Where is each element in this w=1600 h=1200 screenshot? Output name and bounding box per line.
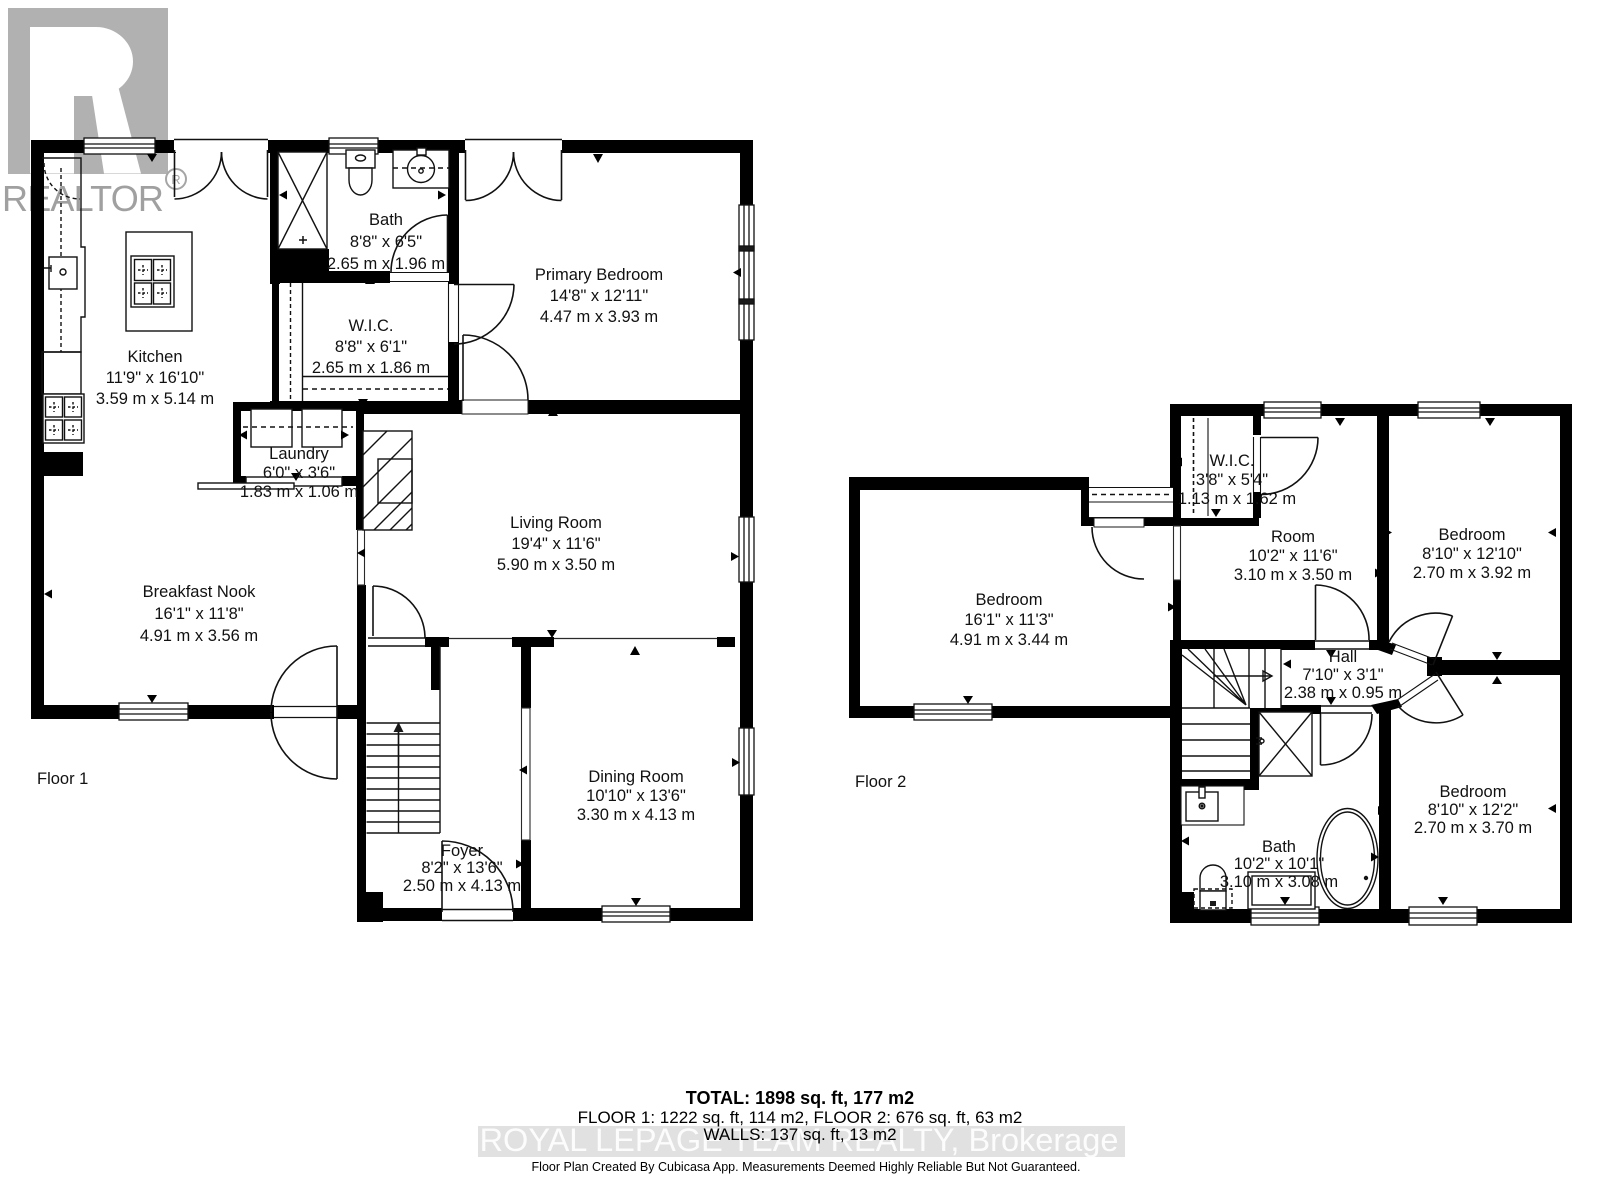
- svg-text:W.I.C.: W.I.C.: [349, 317, 394, 335]
- svg-text:3.30 m x 4.13 m: 3.30 m x 4.13 m: [577, 806, 695, 824]
- svg-text:Dining Room: Dining Room: [588, 768, 683, 786]
- svg-text:16'1" x 11'3": 16'1" x 11'3": [964, 611, 1053, 629]
- svg-text:Bedroom: Bedroom: [976, 591, 1043, 609]
- svg-text:1.13 m x 1.62 m: 1.13 m x 1.62 m: [1178, 490, 1296, 508]
- svg-text:3'8" x 5'4": 3'8" x 5'4": [1196, 471, 1268, 489]
- svg-text:Floor Plan Created By Cubicasa: Floor Plan Created By Cubicasa App. Meas…: [532, 1160, 1081, 1174]
- svg-text:8'10" x 12'10": 8'10" x 12'10": [1422, 545, 1522, 563]
- svg-text:Hall: Hall: [1329, 648, 1357, 666]
- svg-text:Kitchen: Kitchen: [127, 348, 182, 366]
- svg-text:2.65 m x 1.86 m: 2.65 m x 1.86 m: [312, 359, 430, 377]
- svg-text:Floor 1: Floor 1: [37, 770, 88, 788]
- svg-text:2.65 m x 1.96 m: 2.65 m x 1.96 m: [327, 255, 445, 273]
- svg-text:3.59 m x 5.14 m: 3.59 m x 5.14 m: [96, 390, 214, 408]
- svg-text:11'9" x 16'10": 11'9" x 16'10": [106, 369, 205, 387]
- svg-text:2.70 m x 3.70 m: 2.70 m x 3.70 m: [1414, 819, 1532, 837]
- svg-text:Room: Room: [1271, 528, 1315, 546]
- svg-text:16'1" x 11'8": 16'1" x 11'8": [154, 605, 243, 623]
- svg-text:Foyer: Foyer: [441, 842, 484, 860]
- svg-text:1.83 m x 1.06 m: 1.83 m x 1.06 m: [240, 483, 358, 501]
- svg-text:8'2" x 13'6": 8'2" x 13'6": [421, 859, 502, 877]
- svg-text:Living Room: Living Room: [510, 514, 602, 532]
- svg-text:3.10 m x 3.50 m: 3.10 m x 3.50 m: [1234, 566, 1352, 584]
- svg-text:Laundry: Laundry: [269, 445, 329, 463]
- svg-text:10'10" x 13'6": 10'10" x 13'6": [586, 787, 686, 805]
- svg-text:10'2" x 11'6": 10'2" x 11'6": [1248, 547, 1337, 565]
- svg-text:Bedroom: Bedroom: [1439, 526, 1506, 544]
- svg-text:Breakfast Nook: Breakfast Nook: [143, 583, 257, 601]
- svg-text:4.47 m x 3.93 m: 4.47 m x 3.93 m: [540, 308, 658, 326]
- svg-text:2.50 m x 4.13 m: 2.50 m x 4.13 m: [403, 877, 521, 895]
- svg-text:5.90 m x 3.50 m: 5.90 m x 3.50 m: [497, 556, 615, 574]
- svg-text:3.10 m x 3.08 m: 3.10 m x 3.08 m: [1220, 873, 1338, 891]
- svg-text:19'4" x 11'6": 19'4" x 11'6": [511, 535, 600, 553]
- svg-text:8'8" x 6'1": 8'8" x 6'1": [335, 338, 407, 356]
- svg-text:14'8" x 12'11": 14'8" x 12'11": [550, 287, 649, 305]
- svg-text:4.91 m x 3.56 m: 4.91 m x 3.56 m: [140, 627, 258, 645]
- svg-text:Primary Bedroom: Primary Bedroom: [535, 266, 663, 284]
- svg-text:2.38 m x 0.95 m: 2.38 m x 0.95 m: [1284, 684, 1402, 702]
- svg-text:7'10" x 3'1": 7'10" x 3'1": [1302, 666, 1383, 684]
- svg-text:WALLS: 137 sq. ft, 13 m2: WALLS: 137 sq. ft, 13 m2: [703, 1125, 896, 1144]
- svg-text:2.70 m x 3.92 m: 2.70 m x 3.92 m: [1413, 564, 1531, 582]
- svg-text:6'0" x 3'6": 6'0" x 3'6": [263, 464, 335, 482]
- svg-text:REALTOR: REALTOR: [2, 178, 163, 219]
- svg-text:W.I.C.: W.I.C.: [1210, 452, 1255, 470]
- svg-text:Floor 2: Floor 2: [855, 773, 906, 791]
- svg-text:Bath: Bath: [1262, 838, 1296, 856]
- svg-text:R: R: [171, 172, 180, 187]
- svg-text:8'8" x 6'5": 8'8" x 6'5": [350, 233, 422, 251]
- svg-text:Bedroom: Bedroom: [1440, 783, 1507, 801]
- svg-text:TOTAL: 1898 sq. ft, 177 m2: TOTAL: 1898 sq. ft, 177 m2: [686, 1088, 914, 1108]
- svg-text:10'2" x 10'1": 10'2" x 10'1": [1234, 855, 1325, 873]
- svg-text:4.91 m x 3.44 m: 4.91 m x 3.44 m: [950, 631, 1068, 649]
- svg-text:8'10" x 12'2": 8'10" x 12'2": [1428, 801, 1519, 819]
- svg-text:Bath: Bath: [369, 211, 403, 229]
